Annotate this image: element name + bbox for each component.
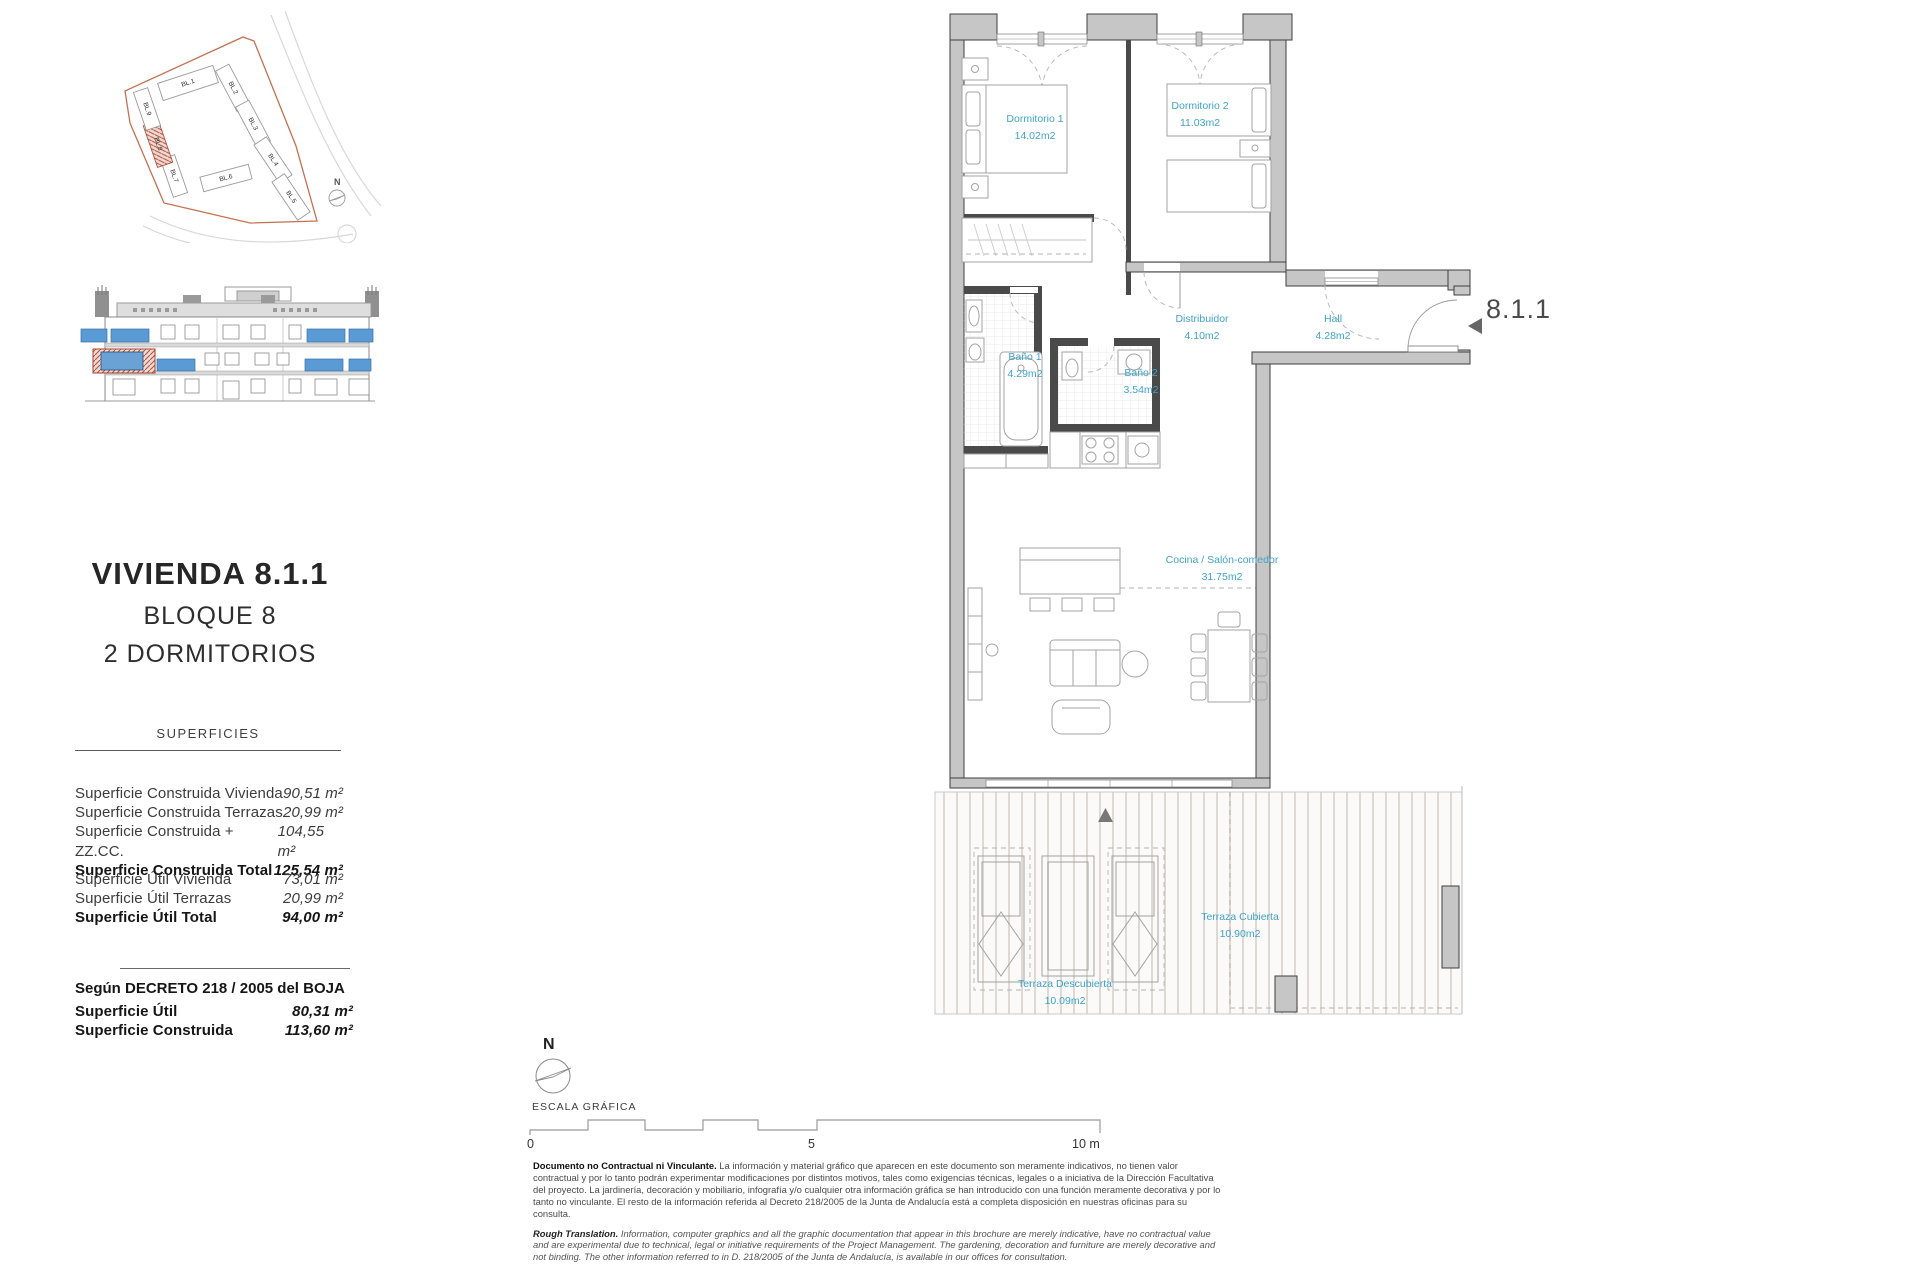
svg-text:N: N [334, 177, 341, 187]
road-line [143, 226, 361, 243]
site-blocks-group: BL.1BL.2BL.3BL.4BL.5BL.6BL.7BL.8BL.9 [133, 64, 310, 220]
escala-grafica-label: ESCALA GRÁFICA [532, 1101, 636, 1113]
area-row-label: Superficie Útil Terrazas [75, 889, 231, 908]
area-row-value: 104,55 m² [278, 822, 343, 860]
area-row-label: Superficie Construida + ZZ.CC. [75, 822, 278, 860]
scale-bar [525, 1113, 1110, 1143]
area-row-value: 113,60 m² [285, 1021, 353, 1040]
area-row-label: Superficie Útil Total [75, 908, 217, 927]
area-row-label: Superficie Construida [75, 1021, 233, 1040]
terrace-pillar [1275, 976, 1297, 1012]
area-table-row: Superficie Construida113,60 m² [75, 1021, 353, 1040]
area-row-value: 20,99 m² [283, 803, 343, 822]
site-block: BL.1 [158, 65, 219, 100]
area-row-value: 80,31 m² [292, 1002, 353, 1021]
bedroom-divider-wall [1126, 40, 1131, 295]
terrace-pillar [1442, 886, 1459, 968]
area-table-row: Superficie Construida Vivienda90,51 m² [75, 784, 343, 803]
site-block: BL.9 [133, 88, 160, 131]
hall-bottom-wall [1252, 352, 1470, 364]
site-plan-drawing: BL.1BL.2BL.3BL.4BL.5BL.6BL.7BL.8BL.9 N [85, 8, 385, 243]
right-bedroom-wall [1270, 40, 1286, 272]
scale-tick-5: 5 [808, 1137, 815, 1151]
bedrooms-subtitle: 2 DORMITORIOS [60, 640, 360, 669]
area-row-value: 73,01 m² [283, 870, 343, 889]
road-line [150, 216, 353, 242]
disclaimer-en: Rough Translation. Information, computer… [533, 1228, 1223, 1264]
area-row-label: Superficie Útil Vivienda [75, 870, 231, 889]
site-block: BL.5 [272, 174, 310, 221]
road-line [285, 11, 381, 206]
disclaimer: Documento no Contractual ni Vinculante. … [533, 1160, 1223, 1263]
wardrobe [962, 218, 1092, 262]
brochure-page: BL.1BL.2BL.3BL.4BL.5BL.6BL.7BL.8BL.9 N [0, 0, 1920, 1280]
entrance-arrow-icon [1468, 318, 1482, 334]
section-divider [120, 968, 350, 969]
scale-tick-10: 10 m [1072, 1137, 1100, 1151]
area-row-value: 94,00 m² [282, 908, 343, 927]
bedroom2-window [1157, 32, 1243, 87]
area-row-value: 90,51 m² [283, 784, 343, 803]
construida-table: Superficie Construida Vivienda90,51 m²Su… [75, 784, 343, 880]
terrace-deck [935, 792, 1462, 1014]
area-row-value: 20,99 m² [283, 889, 343, 908]
bedroom1-furniture [962, 58, 1067, 198]
sliding-glass-door [986, 780, 1232, 787]
block-subtitle: BLOQUE 8 [60, 602, 360, 631]
site-block: BL.6 [200, 164, 252, 191]
area-table-row: Superficie Construida Terrazas20,99 m² [75, 803, 343, 822]
util-table: Superficie Útil Vivienda73,01 m²Superfic… [75, 870, 343, 928]
scale-tick-0: 0 [527, 1137, 534, 1151]
area-table-row: Superficie Útil80,31 m² [75, 1002, 353, 1021]
roundabout [338, 225, 356, 243]
room-label: Distribuidor4.10m2 [1175, 313, 1229, 342]
area-table-row: Superficie Construida + ZZ.CC.104,55 m² [75, 822, 343, 860]
entrance-door [1408, 300, 1458, 352]
decreto-heading: Según DECRETO 218 / 2005 del BOJA [75, 980, 365, 997]
unit-number-label: 8.1.1 [1486, 294, 1551, 325]
area-table-row: Superficie Útil Total94,00 m² [75, 908, 343, 927]
floor-plan-drawing: Dormitorio 114.02m2Dormitorio 211.03m2Ba… [930, 0, 1550, 1030]
superficies-heading: SUPERFICIES [75, 726, 341, 751]
bedroom1-window [997, 32, 1087, 91]
elevation-drawing [65, 285, 390, 403]
site-north-icon: N [329, 177, 345, 206]
decreto-table: Superficie Útil80,31 m²Superficie Constr… [75, 1002, 353, 1040]
area-table-row: Superficie Útil Terrazas20,99 m² [75, 889, 343, 908]
disclaimer-es: Documento no Contractual ni Vinculante. … [533, 1160, 1223, 1220]
area-row-label: Superficie Construida Vivienda [75, 784, 283, 803]
north-compass-icon [528, 1052, 578, 1100]
area-table-row: Superficie Útil Vivienda73,01 m² [75, 870, 343, 889]
area-row-label: Superficie Construida Terrazas [75, 803, 283, 822]
area-row-label: Superficie Útil [75, 1002, 177, 1021]
page-title: VIVIENDA 8.1.1 [60, 556, 360, 592]
living-right-wall [1256, 364, 1270, 780]
